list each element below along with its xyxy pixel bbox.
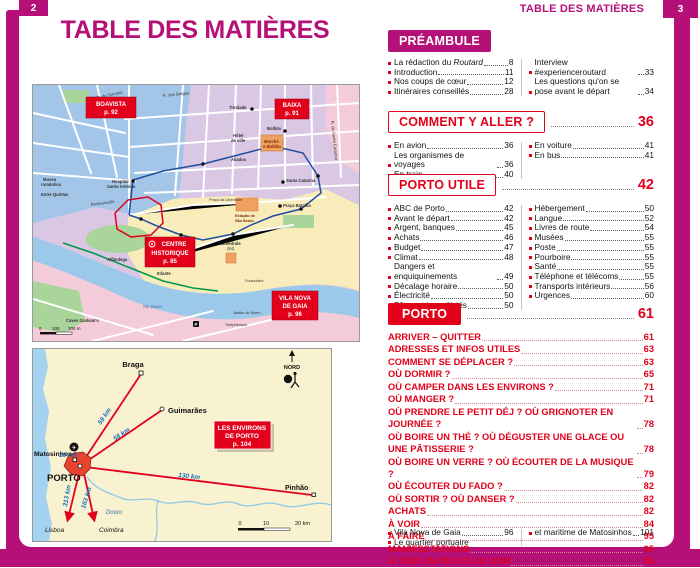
svg-text:Coimbra: Coimbra: [99, 527, 124, 534]
porto-sub-entries: Vila Nova de Gaia96Le quartier portuaire…: [388, 528, 654, 547]
entry-bullet: [388, 145, 391, 148]
section-utile-title: PORTO UTILE: [388, 174, 496, 196]
dotted-leader: [421, 250, 503, 251]
toc-entry: OÙ MANGER ?71: [388, 393, 654, 405]
entry-label: ACHATS: [388, 505, 426, 517]
section-comment-page: 36: [638, 114, 654, 130]
entry-bullet: [388, 237, 391, 240]
dotted-leader: [467, 318, 634, 319]
entry-label: Les organismes de voyages: [394, 151, 496, 170]
toc-entry: OÙ SORTIR ? OÙ DANSER ?82: [388, 493, 654, 505]
city-map-svg: P R. da Torrinha R. dos Bragas Trindade …: [33, 85, 359, 341]
dotted-leader: [438, 74, 504, 75]
dotted-leader: [419, 259, 504, 260]
dotted-leader: [516, 502, 643, 503]
svg-text:p. 91: p. 91: [285, 111, 299, 117]
entry-bullet: [529, 217, 532, 220]
dotted-leader: [586, 211, 644, 212]
dotted-leader: [521, 353, 642, 354]
toc-entry: Dangers et enquiquinements49: [388, 262, 514, 281]
entry-bullet: [388, 541, 391, 544]
dotted-leader: [497, 167, 503, 168]
svg-text:Caves Graham's: Caves Graham's: [66, 318, 99, 323]
entry-bullet: [529, 256, 532, 259]
section-preambule: PRÉAMBULE: [388, 30, 654, 52]
park: [63, 90, 89, 103]
dotted-leader: [452, 378, 643, 379]
entry-bullet: [529, 227, 532, 230]
entry-bullet: [388, 164, 391, 167]
dotted-leader: [619, 279, 643, 280]
entry-label: Le quartier portuaire: [394, 538, 469, 548]
entry-bullet: [388, 208, 391, 211]
svg-text:Aliados: Aliados: [231, 157, 247, 162]
svg-text:Douro: Douro: [106, 510, 123, 516]
svg-text:Téléphérique: Téléphérique: [225, 323, 247, 327]
utile-right-column: Hébergement50Langue52Livres de route54Mu…: [529, 204, 655, 311]
toc-entry: OÙ ÉCOUTER DU FADO ?82: [388, 480, 654, 492]
entry-page-number: 82: [644, 505, 654, 517]
dotted-leader: [571, 298, 644, 299]
entry-page-number: 36: [504, 141, 513, 151]
entry-bullet: [529, 208, 532, 211]
dotted-leader: [590, 230, 643, 231]
entry-bullet: [388, 256, 391, 259]
entry-page-number: 63: [644, 343, 654, 355]
toc-entry: À VOIR UN PEU PLUS LOIN96: [388, 555, 654, 567]
dotted-leader: [637, 428, 643, 429]
entry-bullet: [388, 81, 391, 84]
svg-text:Lisboa: Lisboa: [45, 527, 65, 534]
entry-page-number: 33: [645, 68, 654, 78]
dotted-leader: [561, 157, 643, 158]
svg-text:p. 96: p. 96: [288, 312, 302, 318]
section-preambule-title: PRÉAMBULE: [388, 30, 491, 52]
svg-text:100: 100: [52, 326, 60, 331]
dotted-leader: [573, 148, 644, 149]
dotted-leader: [571, 259, 643, 260]
entry-bullet: [529, 154, 532, 157]
entry-page-number: 60: [645, 291, 654, 301]
entry-bullet: [529, 145, 532, 148]
column-divider: [521, 59, 522, 96]
svg-text:o Bolhão: o Bolhão: [263, 144, 281, 149]
page: { "colors": { "magenta": "#b41078", "red…: [0, 0, 700, 567]
entry-page-number: 28: [504, 87, 513, 97]
entry-label: Itinéraires conseillés: [394, 87, 469, 97]
svg-text:romântico: romântico: [41, 182, 62, 187]
svg-text:LES ENVIRONS: LES ENVIRONS: [218, 425, 267, 432]
svg-text:✈: ✈: [71, 445, 76, 452]
entry-label: COMMENT SE DÉPLACER ?: [388, 356, 513, 368]
svg-text:CENTRE: CENTRE: [162, 242, 187, 248]
toc-entry: Urgences60: [529, 291, 655, 301]
dotted-leader: [484, 65, 508, 66]
toc-entry: OÙ BOIRE UN THÉ ? OÙ DÉGUSTER UNE GLACE …: [388, 431, 654, 456]
entry-bullet: [388, 247, 391, 250]
dotted-leader: [455, 403, 643, 404]
dotted-leader: [638, 74, 644, 75]
dotted-leader: [451, 220, 504, 221]
toc-entry: OÙ CAMPER DANS LES ENVIRONS ?71: [388, 381, 654, 393]
dotted-leader: [502, 189, 634, 190]
entry-label: OÙ DORMIR ?: [388, 368, 451, 380]
entry-bullet: [388, 276, 391, 279]
dotted-leader: [446, 211, 504, 212]
entry-page-number: 79: [644, 468, 654, 480]
svg-text:São Bento: São Bento: [235, 219, 254, 223]
entry-page-number: 101: [640, 528, 654, 538]
svg-text:BOAVISTA: BOAVISTA: [96, 102, 127, 108]
utile-entries: ABC de Porto42Avant le départ42Argent, b…: [388, 204, 654, 311]
entry-bullet: [388, 217, 391, 220]
svg-text:Rio Douro: Rio Douro: [143, 304, 163, 309]
dotted-leader: [504, 490, 643, 491]
dotted-leader: [557, 269, 644, 270]
column-divider: [521, 529, 522, 546]
entry-page-number: 65: [644, 368, 654, 380]
preambule-right-column: Interview #experienceroutard33Les questi…: [529, 58, 655, 97]
toc-entry: Interview #experienceroutard33: [529, 58, 655, 77]
svg-text:PORTO: PORTO: [47, 473, 81, 484]
entry-page-number: 41: [645, 151, 654, 161]
section-porto-page: 61: [638, 306, 654, 322]
entry-label: OÙ CAMPER DANS LES ENVIRONS ?: [388, 381, 554, 393]
svg-text:Entre Quintas: Entre Quintas: [41, 192, 69, 197]
dotted-leader: [427, 515, 643, 516]
entry-bullet: [388, 285, 391, 288]
section-utile-page: 42: [638, 177, 654, 193]
dotted-leader: [456, 230, 503, 231]
svg-text:NORD: NORD: [284, 365, 300, 371]
entry-page-number: 78: [644, 418, 654, 430]
entry-page-number: 96: [644, 555, 654, 567]
toc-entry: ACHATS82: [388, 505, 654, 517]
entry-label: ADRESSES ET INFOS UTILES: [388, 343, 520, 355]
entry-bullet: [529, 532, 532, 535]
entry-page-number: 71: [644, 393, 654, 405]
page-number-right: 3: [663, 0, 698, 18]
entry-bullet: [529, 91, 532, 94]
dotted-leader: [497, 279, 503, 280]
svg-text:Braga: Braga: [122, 360, 144, 369]
toc-entry: OÙ DORMIR ?65: [388, 368, 654, 380]
dotted-leader: [420, 240, 503, 241]
dotted-leader: [462, 535, 504, 536]
dotted-leader: [427, 148, 503, 149]
entry-label: et maritime de Matosinhos: [535, 528, 632, 538]
svg-text:Funiculaire: Funiculaire: [245, 279, 264, 283]
utile-left-column: ABC de Porto42Avant le départ42Argent, b…: [388, 204, 514, 311]
svg-text:Guimarães: Guimarães: [168, 406, 207, 415]
section-comment-title: COMMENT Y ALLER ?: [388, 111, 545, 133]
table-of-contents: PRÉAMBULE La rédaction du Routard8Introd…: [388, 0, 654, 567]
svg-text:0: 0: [238, 521, 241, 527]
entry-bullet: [529, 247, 532, 250]
svg-text:Praça Batalha: Praça Batalha: [283, 203, 311, 208]
svg-text:p. 104: p. 104: [233, 441, 252, 448]
svg-text:10 km: 10 km: [59, 452, 78, 459]
page-number-left: 2: [19, 0, 48, 16]
entry-page-number: 63: [644, 356, 654, 368]
toc-entry: OÙ BOIRE UN VERRE ? OÙ ÉCOUTER DE LA MUS…: [388, 456, 654, 481]
dotted-leader: [565, 240, 644, 241]
svg-text:10: 10: [263, 521, 269, 527]
entry-page-number: 82: [644, 493, 654, 505]
page-title: TABLE DES MATIÈRES: [32, 16, 358, 45]
dotted-leader: [431, 298, 503, 299]
entry-label: OÙ MANGER ?: [388, 393, 454, 405]
entry-page-number: 78: [644, 443, 654, 455]
section-porto: PORTO 61: [388, 303, 654, 325]
entry-label: OÙ ÉCOUTER DU FADO ?: [388, 480, 503, 492]
dotted-leader: [467, 84, 503, 85]
dotted-leader: [458, 288, 503, 289]
svg-text:Jardim do Morro: Jardim do Morro: [233, 311, 261, 315]
svg-text:(84): (84): [227, 246, 235, 251]
toc-entry: Les organismes de voyages36: [388, 151, 514, 170]
svg-text:P: P: [194, 322, 197, 327]
dotted-leader: [470, 94, 503, 95]
entry-bullet: [388, 532, 391, 535]
svg-text:Santo António: Santo António: [107, 184, 136, 189]
region-map: Douro ✈ Braga Guimarães Matosinhos PORTO…: [32, 348, 332, 542]
preambule-left-column: La rédaction du Routard8Introduction11No…: [388, 58, 514, 97]
svg-text:200 m: 200 m: [68, 326, 81, 331]
entry-label: En bus: [535, 151, 561, 161]
entry-bullet: [529, 295, 532, 298]
entry-page-number: 71: [644, 381, 654, 393]
dotted-leader: [514, 365, 643, 366]
entry-label: Dangers et enquiquinements: [394, 262, 496, 281]
dotted-leader: [551, 126, 634, 127]
toc-entry: ARRIVER – QUITTER61: [388, 331, 654, 343]
svg-text:Trindade: Trindade: [229, 105, 247, 110]
toc-entry: et maritime de Matosinhos101: [529, 528, 655, 538]
svg-text:p. 85: p. 85: [163, 259, 177, 265]
toc-entry: En bus41: [529, 151, 655, 161]
entry-bullet: [529, 71, 532, 74]
entry-label: OÙ BOIRE UN THÉ ? OÙ DÉGUSTER UNE GLACE …: [388, 431, 636, 456]
svg-text:BAIXA: BAIXA: [283, 103, 302, 109]
environs-box: LES ENVIRONS DE PORTO p. 104: [214, 421, 274, 452]
preambule-entries: La rédaction du Routard8Introduction11No…: [388, 58, 654, 97]
toc-entry: Le quartier portuaire: [388, 538, 514, 548]
entry-label: À VOIR UN PEU PLUS LOIN: [388, 555, 510, 567]
svg-text:Bolhão: Bolhão: [267, 126, 282, 131]
entry-bullet: [388, 71, 391, 74]
section-porto-utile: PORTO UTILE 42: [388, 174, 654, 196]
toc-entry: COMMENT SE DÉPLACER ?63: [388, 356, 654, 368]
region-map-svg: Douro ✈ Braga Guimarães Matosinhos PORTO…: [33, 349, 331, 541]
svg-text:VILA NOVA: VILA NOVA: [279, 296, 312, 302]
dotted-leader: [637, 453, 643, 454]
entry-page-number: 48: [504, 253, 513, 263]
dotted-leader: [470, 552, 642, 553]
svg-text:p. 92: p. 92: [104, 110, 118, 116]
svg-text:DE PORTO: DE PORTO: [225, 433, 259, 440]
parking-marker: P: [193, 321, 199, 327]
porto-sub-left-column: Vila Nova de Gaia96Le quartier portuaire: [388, 528, 514, 547]
entry-label: OÙ BOIRE UN VERRE ? OÙ ÉCOUTER DE LA MUS…: [388, 456, 636, 481]
toc-entry: ADRESSES ET INFOS UTILES63: [388, 343, 654, 355]
entry-bullet: [388, 295, 391, 298]
entry-bullet: [529, 266, 532, 269]
toc-entry: Itinéraires conseillés28: [388, 87, 514, 97]
svg-text:Infante: Infante: [157, 271, 171, 276]
entry-bullet: [388, 227, 391, 230]
entry-page-number: 34: [645, 87, 654, 97]
svg-text:20 km: 20 km: [295, 521, 310, 527]
section-comment-y-aller: COMMENT Y ALLER ? 36: [388, 111, 654, 133]
dotted-leader: [563, 220, 644, 221]
entry-page-number: 96: [504, 528, 513, 538]
dotted-leader: [611, 288, 643, 289]
svg-text:Santa Catarina: Santa Catarina: [286, 178, 316, 183]
dotted-leader: [557, 250, 644, 251]
porto-sub-right-column: et maritime de Matosinhos101: [529, 528, 655, 547]
entry-label: OÙ SORTIR ? OÙ DANSER ?: [388, 493, 515, 505]
dotted-leader: [555, 390, 643, 391]
column-divider: [521, 205, 522, 310]
running-header: TABLE DES MATIÈRES: [520, 3, 644, 15]
dotted-leader: [638, 94, 644, 95]
svg-text:Alfândega: Alfândega: [107, 257, 128, 262]
svg-text:de ville: de ville: [231, 138, 246, 143]
toc-entry: Les questions qu'on se pose avant le dép…: [529, 77, 655, 96]
entry-label: Urgences: [535, 291, 571, 301]
city-map: P R. da Torrinha R. dos Bragas Trindade …: [32, 84, 360, 342]
entry-label: OÙ PRENDRE LE PETIT DÉJ ? OÙ GRIGNOTER E…: [388, 406, 636, 431]
entry-bullet: [529, 237, 532, 240]
svg-text:Pinhão: Pinhão: [285, 485, 308, 492]
entry-bullet: [388, 91, 391, 94]
entry-bullet: [529, 276, 532, 279]
entry-label: ARRIVER – QUITTER: [388, 331, 481, 343]
toc-entry: OÙ PRENDRE LE PETIT DÉJ ? OÙ GRIGNOTER E…: [388, 406, 654, 431]
dotted-leader: [633, 535, 639, 536]
entry-page-number: 82: [644, 480, 654, 492]
dotted-leader: [637, 477, 643, 478]
section-porto-title: PORTO: [388, 303, 461, 325]
svg-text:Praça da Liberdade: Praça da Liberdade: [209, 198, 242, 202]
svg-text:DE GAIA: DE GAIA: [282, 304, 308, 310]
entry-bullet: [388, 62, 391, 65]
entry-bullet: [529, 285, 532, 288]
entry-label: Les questions qu'on se pose avant le dép…: [535, 77, 637, 96]
entry-page-number: 61: [644, 331, 654, 343]
dotted-leader: [482, 340, 643, 341]
dotted-leader: [511, 565, 643, 566]
svg-text:HISTORIQUE: HISTORIQUE: [151, 251, 188, 257]
porto-marker: [78, 464, 82, 468]
svg-text:Estação de: Estação de: [235, 214, 255, 218]
entry-label: Interview #experienceroutard: [535, 58, 637, 77]
